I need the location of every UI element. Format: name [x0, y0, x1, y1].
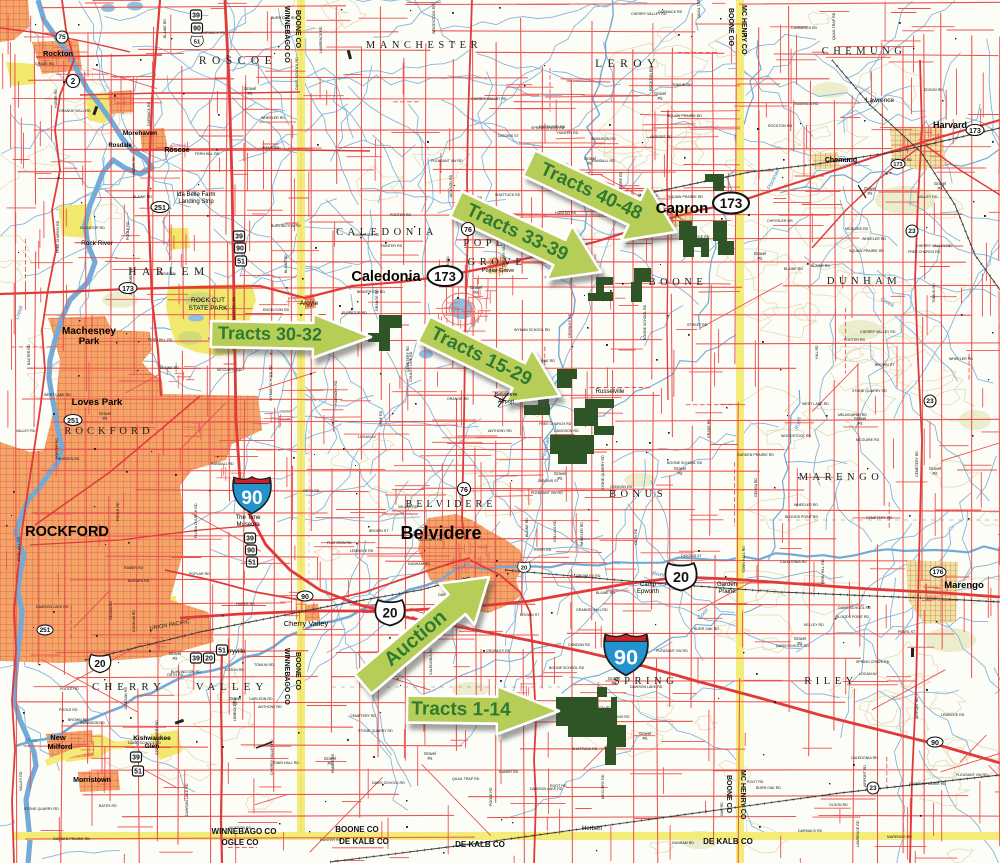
svg-text:GARDEN PRAIRIE RD: GARDEN PRAIRIE RD: [737, 453, 774, 457]
svg-text:Pit: Pit: [474, 290, 480, 295]
svg-text:Chemung: Chemung: [825, 157, 857, 164]
svg-text:Roscoe: Roscoe: [164, 147, 189, 154]
svg-text:STATE PARK: STATE PARK: [188, 305, 228, 312]
svg-text:CONDON RD: CONDON RD: [568, 643, 591, 647]
svg-text:2: 2: [71, 77, 76, 86]
svg-text:Marengo: Marengo: [944, 580, 984, 591]
svg-text:ORANGE RD: ORANGE RD: [447, 397, 469, 401]
svg-text:LAWRENCE RD: LAWRENCE RD: [856, 820, 860, 847]
svg-text:CROWLEY RD: CROWLEY RD: [486, 649, 511, 653]
svg-text:Pit: Pit: [428, 756, 434, 761]
svg-text:ENGELSON RD: ENGELSON RD: [263, 308, 290, 312]
svg-text:FLORA CHURCH RD: FLORA CHURCH RD: [194, 503, 198, 538]
svg-text:173: 173: [893, 162, 902, 168]
svg-text:DUNHAM RD: DUNHAM RD: [132, 610, 136, 632]
svg-text:Ida Belle Farm: Ida Belle Farm: [176, 192, 215, 198]
svg-text:WINNEBAGO CO: WINNEBAGO CO: [212, 827, 277, 836]
svg-text:39: 39: [132, 755, 140, 762]
svg-text:Pit: Pit: [248, 91, 254, 96]
svg-text:Pit: Pit: [173, 656, 179, 661]
svg-text:FERN HILL RD: FERN HILL RD: [17, 536, 21, 561]
svg-text:GROVE: GROVE: [468, 257, 527, 268]
svg-text:BELVIDERE: BELVIDERE: [406, 499, 497, 510]
svg-text:SQUAW PRAIRIE RD: SQUAW PRAIRIE RD: [667, 114, 702, 118]
svg-text:POOLE RD: POOLE RD: [489, 787, 493, 806]
svg-text:CALEDONIA: CALEDONIA: [336, 227, 438, 238]
svg-text:DARMACK RD: DARMACK RD: [798, 829, 823, 833]
svg-text:76: 76: [460, 487, 468, 494]
svg-text:LOGAN AV: LOGAN AV: [358, 435, 377, 439]
svg-text:DUNHAM RD: DUNHAM RD: [672, 841, 694, 845]
svg-text:Harvard: Harvard: [933, 120, 967, 130]
svg-text:BOONE SCHOOL RD: BOONE SCHOOL RD: [549, 666, 585, 670]
svg-text:DIGGINS ST: DIGGINS ST: [498, 134, 520, 138]
svg-text:251: 251: [67, 418, 79, 425]
svg-text:POPLAR RD: POPLAR RD: [189, 572, 210, 576]
svg-text:CARLSON RD: CARLSON RD: [249, 697, 273, 701]
svg-text:WEST LANE RD: WEST LANE RD: [44, 393, 71, 397]
svg-text:STONE QUARRY RD: STONE QUARRY RD: [358, 729, 393, 733]
svg-text:MCGUIRE RD: MCGUIRE RD: [856, 438, 880, 442]
svg-text:BURLINGTON RD: BURLINGTON RD: [271, 224, 301, 228]
svg-text:LEMBCKE RD: LEMBCKE RD: [350, 549, 374, 553]
svg-text:DIGGINS ST: DIGGINS ST: [538, 479, 560, 483]
svg-text:SPRING: SPRING: [614, 676, 678, 687]
svg-text:SPRING CREEK RD: SPRING CREEK RD: [856, 660, 890, 664]
svg-text:BEAVERTON RD: BEAVERTON RD: [357, 290, 385, 294]
svg-text:POOLE RD: POOLE RD: [60, 687, 79, 691]
svg-text:VALLEY RD: VALLEY RD: [19, 771, 23, 791]
svg-text:BLAINE RD: BLAINE RD: [284, 254, 288, 273]
svg-text:WHEELER RD: WHEELER RD: [794, 503, 818, 507]
svg-text:JACKSON RD: JACKSON RD: [449, 174, 453, 198]
svg-text:STONE QUARRY RD: STONE QUARRY RD: [24, 807, 59, 811]
svg-text:MARENGO RD: MARENGO RD: [887, 835, 912, 839]
svg-text:BOONE CO: BOONE CO: [294, 10, 301, 49]
svg-text:BAXTER RD: BAXTER RD: [27, 344, 31, 365]
svg-text:20: 20: [94, 659, 106, 670]
svg-text:HARMONY RD: HARMONY RD: [334, 380, 338, 405]
svg-text:Argyle: Argyle: [300, 300, 319, 307]
svg-text:Rock River: Rock River: [81, 240, 114, 247]
svg-text:WHEELER RD: WHEELER RD: [580, 522, 584, 546]
svg-text:ROCK CUT: ROCK CUT: [191, 297, 225, 304]
svg-text:DE KALB CO: DE KALB CO: [339, 837, 389, 846]
svg-text:Glen: Glen: [145, 743, 159, 750]
svg-text:39: 39: [192, 656, 200, 663]
svg-text:BROWN ST: BROWN ST: [369, 529, 389, 533]
svg-text:23: 23: [869, 785, 877, 792]
svg-text:VALLEY RD: VALLEY RD: [16, 429, 36, 433]
svg-text:20: 20: [382, 606, 397, 621]
svg-text:Pit: Pit: [103, 416, 109, 421]
svg-text:WYMAN SCHOOL RD: WYMAN SCHOOL RD: [269, 365, 273, 401]
svg-text:The Time: The Time: [235, 515, 261, 521]
svg-text:173: 173: [969, 128, 981, 135]
svg-text:STONE QUARRY RD: STONE QUARRY RD: [852, 389, 887, 393]
svg-text:AIRPORT RD: AIRPORT RD: [650, 135, 672, 139]
svg-text:SQUAW PRAIRIE RD: SQUAW PRAIRIE RD: [849, 249, 884, 253]
svg-text:251: 251: [40, 627, 51, 634]
svg-text:QUAIL TRAP RD: QUAIL TRAP RD: [697, 0, 701, 18]
svg-text:76: 76: [464, 227, 472, 234]
svg-text:WYMAN SCHOOL RD: WYMAN SCHOOL RD: [514, 328, 550, 332]
svg-text:173: 173: [122, 286, 134, 293]
svg-text:HUNTER RD: HUNTER RD: [557, 131, 579, 135]
svg-text:BROWN ST: BROWN ST: [875, 363, 895, 367]
svg-text:DAVIDSON RD: DAVIDSON RD: [554, 429, 579, 433]
svg-text:ROSCOE: ROSCOE: [199, 55, 277, 67]
svg-text:BONUS: BONUS: [609, 489, 667, 500]
svg-text:BOONE CO: BOONE CO: [335, 825, 379, 834]
svg-text:51: 51: [248, 560, 256, 567]
svg-text:OAK RD: OAK RD: [720, 802, 724, 816]
svg-text:MANCHESTER: MANCHESTER: [366, 40, 482, 51]
svg-text:POOLE RD: POOLE RD: [126, 221, 130, 240]
svg-text:ROCKTON RD: ROCKTON RD: [768, 124, 792, 128]
svg-text:MC HENRY CO: MC HENRY CO: [740, 5, 747, 55]
svg-text:BLAINE RD: BLAINE RD: [133, 195, 152, 199]
svg-text:DARMACK RD: DARMACK RD: [201, 31, 226, 35]
svg-text:MC HENRY CO: MC HENRY CO: [739, 770, 746, 820]
svg-text:DAWSON LAKE RD: DAWSON LAKE RD: [530, 787, 563, 791]
svg-text:DAVIS SCHOOL RD: DAVIS SCHOOL RD: [776, 644, 809, 648]
svg-text:FERN HILL RD: FERN HILL RD: [821, 559, 825, 584]
svg-text:Morehaven: Morehaven: [123, 130, 157, 137]
svg-text:SWANSON RD: SWANSON RD: [591, 137, 616, 141]
svg-text:MCGUIRE RD: MCGUIRE RD: [845, 227, 869, 231]
svg-text:90: 90: [614, 645, 638, 670]
svg-text:Tracts 30-32: Tracts 30-32: [218, 323, 322, 345]
svg-text:LEMBCKE RD: LEMBCKE RD: [941, 713, 965, 717]
svg-text:Landing Strip: Landing Strip: [178, 199, 214, 205]
svg-text:Pit: Pit: [868, 191, 874, 196]
svg-text:GENOA RD: GENOA RD: [109, 601, 113, 620]
svg-text:STONE QUARRY RD: STONE QUARRY RD: [601, 455, 605, 490]
svg-text:CHEMUNG: CHEMUNG: [822, 46, 907, 57]
svg-text:BOONE CO: BOONE CO: [725, 775, 732, 814]
svg-text:BOONE CO: BOONE CO: [727, 8, 734, 47]
svg-text:ENGELSON RD: ENGELSON RD: [539, 125, 566, 129]
svg-text:Pit: Pit: [798, 641, 804, 646]
svg-text:Herbert: Herbert: [582, 826, 602, 832]
svg-text:173: 173: [434, 269, 456, 284]
svg-text:RIVER RD: RIVER RD: [534, 548, 552, 552]
svg-text:251: 251: [154, 205, 166, 212]
svg-text:ROCKFORD: ROCKFORD: [25, 524, 109, 540]
svg-text:HILL RD: HILL RD: [815, 345, 819, 359]
svg-text:Prairie: Prairie: [718, 589, 736, 595]
svg-text:Pit: Pit: [643, 736, 649, 741]
svg-text:Rockton: Rockton: [43, 49, 73, 58]
svg-text:HUBER RD: HUBER RD: [236, 602, 255, 606]
svg-text:Capron: Capron: [656, 200, 709, 217]
svg-text:23: 23: [908, 228, 916, 235]
svg-text:CALEDONIA RD: CALEDONIA RD: [429, 648, 433, 675]
svg-text:CRAWFORD RD: CRAWFORD RD: [232, 296, 236, 324]
svg-text:CHERRY: CHERRY: [92, 681, 166, 693]
svg-text:Epworth: Epworth: [637, 589, 659, 595]
svg-text:20: 20: [673, 570, 689, 586]
svg-text:STREET RD: STREET RD: [687, 323, 708, 327]
svg-text:Caledonia: Caledonia: [351, 269, 421, 285]
svg-text:WHEELER RD: WHEELER RD: [862, 237, 886, 241]
svg-text:OGLE CO: OGLE CO: [222, 838, 259, 847]
svg-text:HUBER RD: HUBER RD: [132, 156, 136, 175]
svg-text:WINNEBAGO CO: WINNEBAGO CO: [283, 6, 290, 63]
svg-text:CHERRY VALLEY RD: CHERRY VALLEY RD: [270, 739, 274, 775]
svg-text:BLOODS POINT RD: BLOODS POINT RD: [836, 615, 869, 619]
svg-text:POOLE RD: POOLE RD: [116, 502, 120, 521]
svg-text:51: 51: [218, 648, 226, 655]
svg-text:QUAIL TRAP RD: QUAIL TRAP RD: [832, 12, 836, 40]
svg-text:BLAINE RD: BLAINE RD: [811, 264, 830, 268]
svg-text:ORTH RD: ORTH RD: [303, 489, 320, 493]
svg-text:HUNTER RD: HUNTER RD: [555, 211, 577, 215]
svg-text:ORTH RD: ORTH RD: [167, 673, 184, 677]
svg-text:RAMER RD: RAMER RD: [499, 770, 519, 774]
svg-text:BATES RD: BATES RD: [99, 804, 117, 808]
svg-text:GRAF RD: GRAF RD: [379, 410, 383, 427]
svg-text:TOMLIN RD: TOMLIN RD: [672, 83, 692, 87]
svg-text:RAMER RD: RAMER RD: [124, 566, 144, 570]
svg-text:39: 39: [235, 234, 243, 241]
svg-text:DAVIS SCHOOL RD: DAVIS SCHOOL RD: [838, 606, 871, 610]
svg-text:ROCKTON RD: ROCKTON RD: [649, 67, 653, 91]
svg-text:51: 51: [134, 769, 142, 776]
svg-text:RANDALL RD: RANDALL RD: [211, 462, 234, 466]
svg-text:GRANGE HALL RD: GRANGE HALL RD: [59, 109, 91, 113]
svg-text:AIRPORT RD: AIRPORT RD: [863, 765, 867, 787]
svg-text:39: 39: [192, 13, 200, 20]
svg-text:51: 51: [237, 259, 245, 266]
svg-text:BLAINE RD: BLAINE RD: [596, 591, 615, 595]
svg-text:Pit: Pit: [933, 471, 939, 476]
svg-text:CHERRY VALLEY RD: CHERRY VALLEY RD: [860, 330, 896, 334]
svg-text:PEARL ST: PEARL ST: [898, 630, 916, 634]
svg-text:FLAT IRON RD: FLAT IRON RD: [327, 541, 352, 545]
svg-text:CHERRY VALLEY RD: CHERRY VALLEY RD: [471, 97, 507, 101]
svg-text:BLAINE RD: BLAINE RD: [160, 366, 179, 370]
svg-text:TOMLIN RD: TOMLIN RD: [254, 663, 274, 667]
svg-text:SWANSON RD: SWANSON RD: [794, 102, 819, 106]
svg-text:DIGGINS ST: DIGGINS ST: [681, 554, 703, 558]
svg-text:BURR OAK RD: BURR OAK RD: [756, 786, 781, 790]
svg-text:BLAINE RD: BLAINE RD: [525, 518, 529, 537]
svg-text:River: River: [25, 738, 39, 744]
svg-text:PORTER RD: PORTER RD: [844, 338, 866, 342]
svg-text:Morristown: Morristown: [73, 777, 111, 784]
svg-text:Pit: Pit: [588, 161, 594, 166]
svg-text:Tracts 1-14: Tracts 1-14: [411, 698, 511, 720]
svg-text:BLAINE RD: BLAINE RD: [784, 267, 803, 271]
svg-text:90: 90: [241, 488, 262, 509]
svg-text:CEMETERY RD: CEMETERY RD: [866, 516, 892, 520]
svg-text:BLAINE RD: BLAINE RD: [163, 19, 167, 38]
svg-text:EDSON RD: EDSON RD: [225, 668, 244, 672]
svg-text:Poplar Grove: Poplar Grove: [482, 268, 514, 274]
svg-text:BURDEN RD: BURDEN RD: [58, 457, 80, 461]
svg-text:TOWN HALL RD: TOWN HALL RD: [742, 546, 746, 573]
svg-text:CHRYSLER DR: CHRYSLER DR: [767, 219, 793, 223]
svg-text:GRADE RD: GRADE RD: [35, 62, 54, 66]
svg-text:EDSON RD: EDSON RD: [924, 88, 943, 92]
svg-text:Belvidere: Belvidere: [495, 392, 518, 398]
svg-text:VALLEY: VALLEY: [196, 681, 269, 693]
svg-text:WOODSTOCK RD: WOODSTOCK RD: [781, 434, 811, 438]
svg-text:Belvidere: Belvidere: [400, 523, 481, 543]
svg-text:KELLEY RD: KELLEY RD: [804, 623, 824, 627]
svg-text:FREE CHURCH RD: FREE CHURCH RD: [908, 250, 941, 254]
svg-text:MARENGO: MARENGO: [799, 472, 884, 483]
svg-text:Lawrence: Lawrence: [866, 97, 895, 104]
svg-text:WEST LANE RD: WEST LANE RD: [802, 402, 829, 406]
svg-text:Loves Park: Loves Park: [72, 397, 123, 408]
svg-text:Pit: Pit: [678, 471, 684, 476]
svg-text:CUMMINGS RD: CUMMINGS RD: [791, 26, 818, 30]
svg-text:Pit: Pit: [558, 476, 564, 481]
svg-text:20: 20: [205, 656, 213, 663]
svg-text:LEROY: LEROY: [595, 58, 661, 70]
svg-text:WOODSTOCK RD: WOODSTOCK RD: [432, 4, 436, 34]
svg-text:CROWLEY RD: CROWLEY RD: [568, 313, 572, 338]
svg-text:Russelville: Russelville: [596, 389, 625, 395]
svg-text:ROCKFORD: ROCKFORD: [64, 426, 153, 437]
svg-text:HARLEM: HARLEM: [128, 266, 210, 278]
svg-text:SWANSON RD: SWANSON RD: [80, 721, 105, 725]
svg-text:PLEASANT VW RD: PLEASANT VW RD: [431, 159, 463, 163]
svg-text:BURR OAK RD: BURR OAK RD: [694, 627, 719, 631]
svg-text:PORTER RD: PORTER RD: [55, 437, 59, 459]
svg-text:23: 23: [926, 398, 934, 405]
svg-text:Park: Park: [79, 336, 100, 347]
svg-text:DAWSON LAKE RD: DAWSON LAKE RD: [185, 783, 189, 816]
svg-text:GARDEN PRAIRIE RD: GARDEN PRAIRIE RD: [909, 782, 946, 786]
svg-text:FREE CHURCH RD: FREE CHURCH RD: [56, 220, 60, 253]
svg-text:90: 90: [931, 740, 939, 747]
svg-text:PORTER RD: PORTER RD: [390, 213, 412, 217]
svg-text:AIRPORT RD: AIRPORT RD: [915, 697, 919, 719]
svg-text:FREE CHURCH RD: FREE CHURCH RD: [539, 422, 572, 426]
svg-text:BOONE CO: BOONE CO: [294, 652, 301, 691]
svg-text:HUNTER RD: HUNTER RD: [381, 244, 403, 248]
svg-text:Museum: Museum: [236, 522, 259, 528]
svg-text:FERN HILL RD: FERN HILL RD: [148, 338, 173, 342]
svg-text:90: 90: [193, 26, 201, 33]
svg-text:WHEELER RD: WHEELER RD: [261, 116, 285, 120]
svg-text:ANTHONY RD: ANTHONY RD: [258, 705, 282, 709]
svg-text:ROOT RD: ROOT RD: [747, 780, 764, 784]
svg-text:90: 90: [236, 246, 244, 253]
svg-text:Rosdale: Rosdale: [108, 143, 132, 149]
svg-text:ORTH RD: ORTH RD: [634, 528, 638, 545]
svg-text:ELEVATOR RD: ELEVATOR RD: [342, 311, 367, 315]
svg-text:Pit: Pit: [658, 96, 664, 101]
svg-text:LAWRENCE RD: LAWRENCE RD: [319, 26, 323, 53]
svg-text:90: 90: [301, 594, 309, 601]
svg-text:CEMETERY RD: CEMETERY RD: [915, 451, 919, 477]
svg-text:FERN HILL RD: FERN HILL RD: [195, 152, 220, 156]
svg-text:DAWSON LAKE RD: DAWSON LAKE RD: [36, 605, 69, 609]
svg-text:VALLEY RD: VALLEY RD: [918, 195, 938, 199]
svg-text:Pit: Pit: [328, 761, 334, 766]
svg-text:20: 20: [521, 565, 527, 571]
svg-text:39: 39: [246, 536, 254, 543]
svg-text:Pit: Pit: [938, 186, 944, 191]
svg-text:CALEDONIA RD: CALEDONIA RD: [780, 560, 807, 564]
svg-text:Camp: Camp: [640, 582, 657, 588]
svg-text:TOWN HALL RD: TOWN HALL RD: [272, 761, 299, 765]
svg-text:WINNEBAGO CO: WINNEBAGO CO: [283, 648, 290, 705]
svg-text:HUBER RD: HUBER RD: [54, 89, 58, 108]
svg-text:BOONE: BOONE: [649, 277, 708, 288]
svg-text:DARMACK RD: DARMACK RD: [658, 10, 683, 14]
svg-text:176: 176: [933, 569, 944, 576]
svg-text:CHERRY VALLEY RD: CHERRY VALLEY RD: [916, 244, 952, 248]
svg-text:BROWN ST: BROWN ST: [520, 613, 540, 617]
svg-text:90: 90: [247, 548, 255, 555]
svg-text:173: 173: [720, 196, 743, 211]
svg-text:DARMACK RD: DARMACK RD: [147, 101, 151, 126]
svg-text:CEMETERY RD: CEMETERY RD: [406, 346, 410, 372]
svg-text:Airport: Airport: [498, 399, 515, 405]
svg-text:RILEY: RILEY: [804, 676, 857, 687]
svg-text:Cherry Valley: Cherry Valley: [284, 619, 329, 628]
svg-text:DUNHAM RD: DUNHAM RD: [408, 562, 430, 566]
svg-text:Garden: Garden: [717, 582, 737, 588]
svg-text:DE KALB CO: DE KALB CO: [455, 840, 505, 849]
svg-text:QUAIL TRAP RD: QUAIL TRAP RD: [452, 777, 480, 781]
svg-text:OLSON RD: OLSON RD: [829, 803, 848, 807]
svg-text:CROWLEY RD: CROWLEY RD: [576, 574, 601, 578]
svg-text:DE KALB CO: DE KALB CO: [703, 837, 753, 846]
svg-text:MCCURRY RD: MCCURRY RD: [601, 774, 605, 799]
svg-text:GRADE RD: GRADE RD: [707, 419, 711, 438]
svg-text:SQUAW PRAIRIE RD: SQUAW PRAIRIE RD: [668, 195, 703, 199]
svg-text:BOONE SCHOOL RD: BOONE SCHOOL RD: [643, 304, 647, 340]
svg-text:DUNHAM: DUNHAM: [827, 276, 901, 287]
svg-text:DAVIS SCHOOL RD: DAVIS SCHOOL RD: [372, 781, 405, 785]
svg-text:CALEDONIA RD: CALEDONIA RD: [851, 756, 878, 760]
svg-text:New: New: [50, 733, 66, 742]
svg-text:GENOA RD: GENOA RD: [754, 478, 758, 497]
svg-text:Pit: Pit: [758, 256, 764, 261]
svg-text:PLEASANT VW RD: PLEASANT VW RD: [956, 773, 988, 777]
svg-text:Milford: Milford: [48, 742, 73, 751]
svg-text:51: 51: [194, 39, 201, 45]
svg-text:Kishwaukee: Kishwaukee: [133, 735, 171, 742]
svg-text:DAVIS SCHOOL RD: DAVIS SCHOOL RD: [295, 57, 299, 90]
svg-text:GARDEN PRAIRIE RD: GARDEN PRAIRIE RD: [53, 837, 90, 841]
svg-text:WHEELER RD: WHEELER RD: [949, 357, 973, 361]
svg-text:TOMLIN RD: TOMLIN RD: [932, 283, 936, 303]
svg-text:GRANGE HALL RD: GRANGE HALL RD: [576, 608, 608, 612]
svg-text:LOGAN AV: LOGAN AV: [859, 672, 878, 676]
svg-text:PLEASANT VW RD: PLEASANT VW RD: [531, 491, 563, 495]
svg-text:CEMETERY RD: CEMETERY RD: [350, 714, 376, 718]
svg-text:ANTHONY RD: ANTHONY RD: [488, 429, 512, 433]
svg-text:PLEASANT VW RD: PLEASANT VW RD: [656, 649, 688, 653]
svg-text:ELEVATOR RD: ELEVATOR RD: [80, 226, 105, 230]
svg-text:MCCURRY RD: MCCURRY RD: [217, 368, 242, 372]
svg-text:75: 75: [58, 34, 66, 41]
svg-text:BURDEN RD: BURDEN RD: [128, 579, 150, 583]
svg-text:Pit: Pit: [233, 701, 239, 706]
svg-text:Pit: Pit: [858, 421, 864, 426]
svg-text:SHATTUCK RD: SHATTUCK RD: [495, 193, 521, 197]
svg-text:POOLE RD: POOLE RD: [59, 708, 78, 712]
svg-text:SHATTUCK RD: SHATTUCK RD: [572, 747, 598, 751]
